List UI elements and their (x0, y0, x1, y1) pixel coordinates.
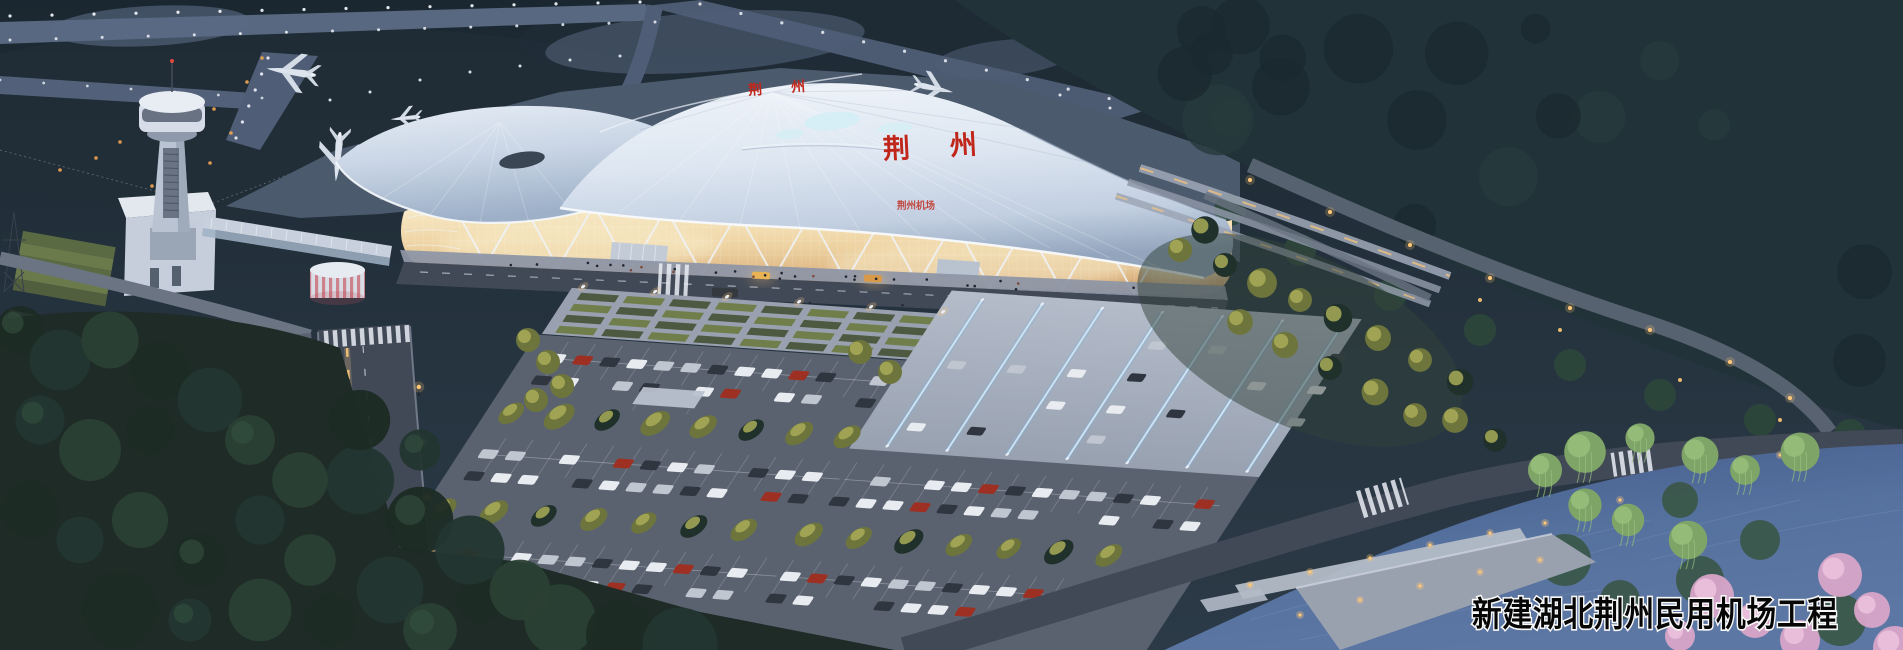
drum-building (310, 262, 365, 305)
facade-sign: 荆州机场 (897, 199, 935, 212)
scene-canvas: 荆州 荆州 荆州机场 (0, 0, 1903, 650)
airport-rendering: 荆州 荆州 荆州机场 (0, 0, 1903, 650)
caption-text: 新建湖北荆州民用机场工程 (1472, 596, 1838, 634)
